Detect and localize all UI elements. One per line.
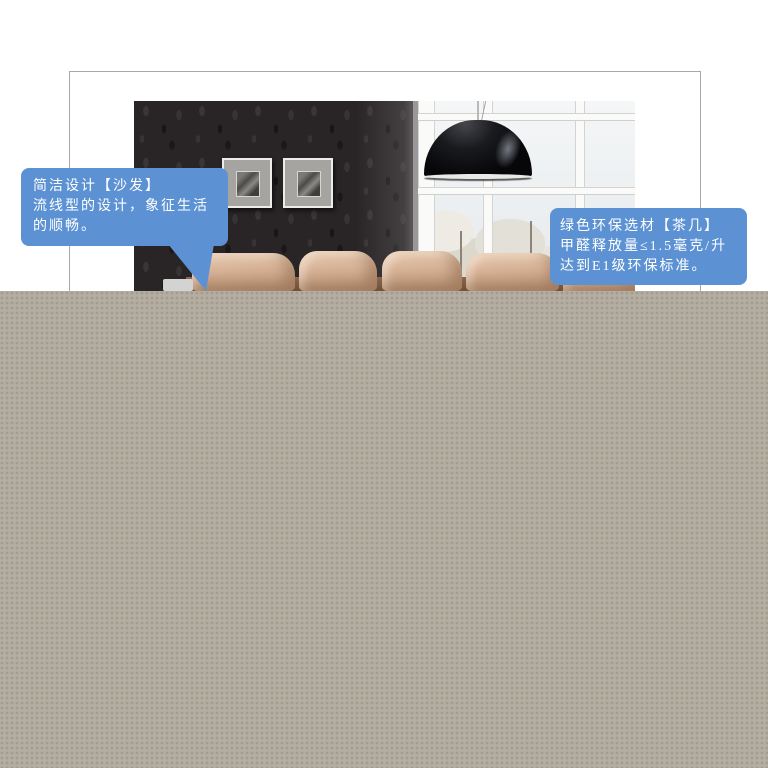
sofa-cushion (466, 253, 559, 291)
callout-line: 流线型的设计，象征生活 (33, 197, 216, 217)
unloaded-image-placeholder (0, 291, 768, 768)
lamp-rim (424, 174, 532, 179)
callout-line: 简洁设计【沙发】 (33, 177, 216, 197)
sofa-cushion (299, 251, 377, 291)
callout-line: 甲醛释放量≤1.5毫克/升 (560, 237, 737, 257)
picture-frame (283, 158, 333, 208)
lamp-cord (477, 101, 479, 122)
picture-frame (222, 158, 272, 208)
callout-line: 的顺畅。 (33, 217, 216, 237)
callout-tea-table-eco: 绿色环保选材【茶几】 甲醛释放量≤1.5毫克/升 达到E1级环保标准。 (550, 208, 747, 285)
framed-art (236, 171, 260, 197)
window-mullion (418, 113, 635, 121)
window-mullion (418, 187, 635, 195)
callout-tail (158, 244, 218, 292)
product-detail-page: 简洁设计【沙发】 流线型的设计，象征生活 的顺畅。 绿色环保选材【茶几】 甲醛释… (0, 0, 768, 768)
framed-art (297, 171, 321, 197)
callout-line: 达到E1级环保标准。 (560, 257, 737, 277)
sofa-cushion (382, 251, 462, 291)
callout-sofa-design: 简洁设计【沙发】 流线型的设计，象征生活 的顺畅。 (21, 168, 228, 246)
callout-line: 绿色环保选材【茶几】 (560, 217, 737, 237)
